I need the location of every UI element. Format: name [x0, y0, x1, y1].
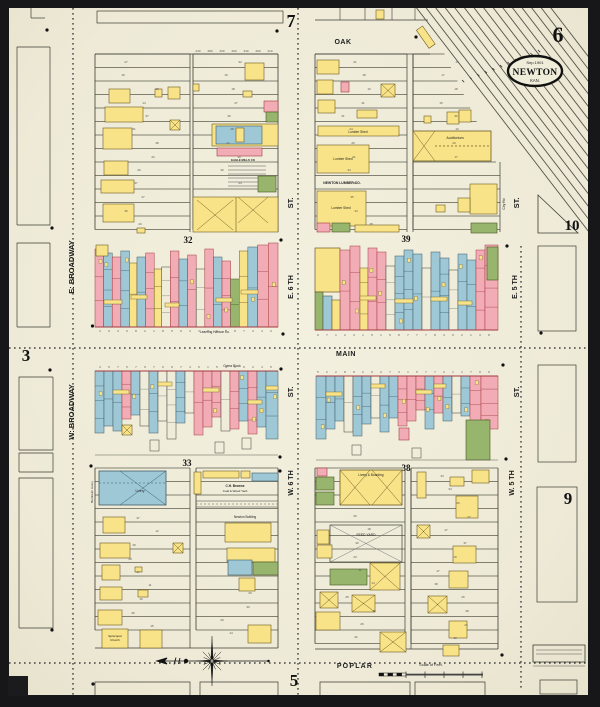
- svg-text:14: 14: [229, 631, 233, 635]
- svg-text:30: 30: [454, 114, 458, 118]
- svg-text:38: 38: [434, 582, 438, 586]
- svg-text:18: 18: [367, 527, 371, 531]
- svg-text:30: 30: [220, 168, 224, 172]
- svg-text:34: 34: [354, 209, 358, 213]
- svg-text:20: 20: [248, 591, 252, 595]
- svg-text:210: 210: [267, 49, 272, 53]
- svg-text:28: 28: [369, 222, 373, 226]
- svg-text:Sep.1901: Sep.1901: [526, 60, 544, 65]
- svg-text:39: 39: [402, 234, 412, 244]
- svg-text:37: 37: [463, 541, 467, 545]
- svg-text:W. 5 TH: W. 5 TH: [509, 470, 516, 495]
- svg-text:26: 26: [456, 501, 460, 505]
- svg-text:E. 5 TH: E. 5 TH: [512, 275, 519, 299]
- svg-text:ST.: ST.: [286, 198, 295, 209]
- svg-text:34: 34: [347, 168, 351, 172]
- svg-text:30: 30: [132, 543, 136, 547]
- svg-text:16: 16: [139, 597, 143, 601]
- svg-text:Livery: Livery: [135, 489, 144, 493]
- svg-text:18: 18: [231, 87, 235, 91]
- svg-text:35: 35: [350, 195, 354, 199]
- svg-text:28: 28: [230, 127, 234, 131]
- svg-text:Coal & Wood Yard: Coal & Wood Yard: [223, 489, 248, 493]
- svg-text:27: 27: [234, 101, 238, 105]
- svg-text:33: 33: [183, 458, 193, 468]
- svg-text:9: 9: [564, 489, 573, 508]
- svg-text:17: 17: [454, 155, 458, 159]
- svg-text:17: 17: [436, 569, 440, 573]
- svg-text:E. 6 TH: E. 6 TH: [288, 275, 295, 299]
- svg-text:FEED YARD: FEED YARD: [356, 533, 376, 537]
- svg-text:21: 21: [352, 155, 356, 159]
- svg-text:10: 10: [367, 87, 371, 91]
- svg-text:32: 32: [184, 235, 194, 245]
- svg-text:27: 27: [141, 195, 145, 199]
- svg-text:ST.: ST.: [286, 387, 295, 398]
- svg-text:200: 200: [255, 49, 260, 53]
- svg-text:EAGLE MILLS CO: EAGLE MILLS CO: [231, 158, 256, 162]
- svg-text:10: 10: [565, 218, 580, 234]
- svg-text:18: 18: [362, 73, 366, 77]
- svg-text:35: 35: [227, 114, 231, 118]
- svg-text:29: 29: [351, 141, 355, 145]
- svg-text:Lumber Shed: Lumber Shed: [331, 206, 350, 210]
- svg-text:Livery & Boarding: Livery & Boarding: [358, 473, 383, 477]
- svg-text:W. 6 TH: W. 6 TH: [288, 470, 295, 495]
- svg-text:17: 17: [136, 570, 140, 574]
- svg-text:24: 24: [349, 127, 353, 131]
- svg-text:37: 37: [145, 114, 149, 118]
- svg-text:W: BROADWAY: W: BROADWAY: [67, 384, 76, 439]
- svg-text:27: 27: [124, 60, 128, 64]
- svg-text:21: 21: [353, 60, 357, 64]
- svg-text:26: 26: [353, 514, 357, 518]
- svg-text:32: 32: [238, 60, 242, 64]
- svg-text:30: 30: [246, 605, 250, 609]
- svg-text:OAK: OAK: [334, 39, 351, 46]
- svg-text:24: 24: [238, 181, 242, 185]
- svg-text:KAN.: KAN.: [530, 78, 540, 83]
- svg-text:30: 30: [355, 541, 359, 545]
- svg-text:26: 26: [360, 622, 364, 626]
- svg-text:17: 17: [444, 528, 448, 532]
- svg-text:38: 38: [155, 141, 159, 145]
- svg-text:21: 21: [341, 114, 345, 118]
- svg-text:Scale of Feet.: Scale of Feet.: [419, 663, 442, 667]
- svg-text:Church: Church: [110, 638, 120, 642]
- svg-text:15: 15: [150, 624, 154, 628]
- svg-text:230: 230: [219, 49, 224, 53]
- svg-text:240: 240: [195, 49, 200, 53]
- svg-text:MAIN: MAIN: [336, 351, 356, 358]
- svg-text:18: 18: [454, 87, 458, 91]
- svg-text:11: 11: [358, 568, 361, 572]
- svg-text:240: 240: [243, 49, 248, 53]
- svg-text:Bernheim Livery: Bernheim Livery: [90, 481, 94, 503]
- svg-text:37: 37: [134, 181, 138, 185]
- svg-text:31: 31: [361, 101, 365, 105]
- svg-text:19: 19: [224, 73, 228, 77]
- svg-text:30: 30: [237, 155, 241, 159]
- svg-text:12: 12: [155, 529, 159, 533]
- svg-text:28: 28: [128, 557, 132, 561]
- svg-text:34: 34: [448, 487, 452, 491]
- svg-text:23: 23: [353, 555, 357, 559]
- svg-text:280: 280: [207, 49, 212, 53]
- svg-text:38: 38: [465, 609, 469, 613]
- svg-text:C.H. Browne: C.H. Browne: [226, 484, 245, 488]
- svg-text:200: 200: [231, 49, 236, 53]
- svg-text:6: 6: [553, 22, 564, 47]
- svg-text:15: 15: [439, 101, 443, 105]
- svg-text:26: 26: [461, 595, 465, 599]
- svg-text:37: 37: [136, 516, 140, 520]
- svg-text:36: 36: [131, 611, 135, 615]
- svg-text:26: 26: [137, 168, 141, 172]
- svg-text:14: 14: [455, 60, 459, 64]
- svg-text:ST.: ST.: [512, 387, 521, 398]
- svg-text:23: 23: [464, 623, 468, 627]
- svg-text:10: 10: [453, 636, 457, 640]
- svg-text:13: 13: [455, 127, 459, 131]
- svg-text:25: 25: [345, 595, 349, 599]
- svg-text:Newton Bottling: Newton Bottling: [234, 515, 257, 519]
- svg-text:NEWTON: NEWTON: [513, 68, 558, 78]
- svg-text:19: 19: [155, 87, 159, 91]
- svg-text:POPLAR: POPLAR: [337, 663, 373, 670]
- svg-text:20: 20: [452, 141, 456, 145]
- svg-text:16: 16: [121, 73, 125, 77]
- svg-text:29: 29: [220, 618, 224, 622]
- svg-text:7: 7: [287, 11, 296, 31]
- svg-text:14: 14: [371, 581, 375, 585]
- svg-text:5: 5: [290, 671, 299, 690]
- svg-text:32: 32: [354, 635, 358, 639]
- svg-text:23: 23: [138, 222, 142, 226]
- svg-text:19: 19: [453, 555, 457, 559]
- svg-text:17: 17: [441, 73, 445, 77]
- svg-text:3: 3: [22, 346, 31, 365]
- svg-text:14: 14: [142, 101, 146, 105]
- svg-text:Lumber Shed: Lumber Shed: [333, 157, 352, 161]
- svg-text:22: 22: [151, 155, 155, 159]
- svg-text:11: 11: [148, 583, 151, 587]
- svg-text:27: 27: [467, 515, 471, 519]
- svg-text:38: 38: [372, 609, 376, 613]
- svg-text:29: 29: [353, 181, 357, 185]
- svg-text:33: 33: [440, 474, 444, 478]
- svg-text:ST.: ST.: [512, 198, 521, 209]
- svg-text:21: 21: [132, 127, 136, 131]
- svg-text:City Rd: City Rd: [502, 198, 506, 209]
- svg-text:E: BROADWAY: E: BROADWAY: [67, 240, 76, 293]
- svg-text:35: 35: [124, 209, 128, 213]
- svg-text:22: 22: [226, 141, 230, 145]
- svg-text:Auditorium: Auditorium: [446, 136, 463, 140]
